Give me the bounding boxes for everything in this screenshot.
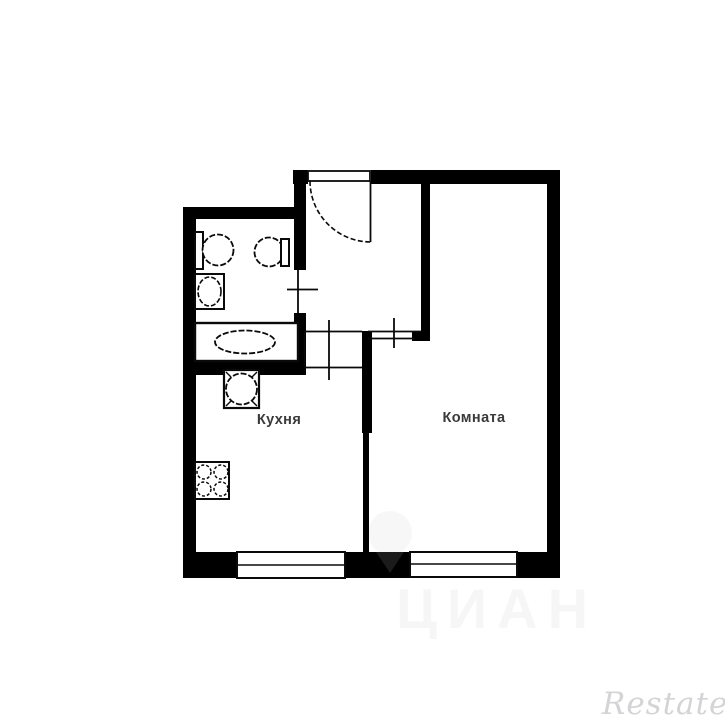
room-door-jamb [412,331,430,341]
kitchen-doorway [304,320,362,380]
right-wall [547,170,560,578]
cian-pin-watermark-head [368,511,412,555]
kitchen-room-divider-wall-lower [363,433,369,552]
toilet-left-tank-icon [195,232,203,269]
kitchen-sink-bowl-icon [226,374,257,405]
restate-watermark: Restate [602,686,725,722]
top-wall-left-stub [293,170,308,184]
stove-burner-icon [197,465,211,479]
kitchen-fixtures [195,370,259,499]
stove-burner-icon [197,482,211,496]
bathroom-top-wall [183,207,306,219]
kitchen-label: Кухня [229,412,329,428]
toilet-left-bowl-icon [203,235,234,266]
bathroom-right-wall-upper [294,184,306,270]
bathroom-fixtures [195,232,298,361]
entrance-door [308,171,371,242]
room-label: Комната [413,410,535,426]
kitchen-room-divider-wall-upper [362,331,372,433]
bottom-wall-left [183,552,237,578]
hallway-right-wall [421,184,430,341]
bottom-wall-right [517,552,560,578]
entrance-threshold [308,171,370,181]
entrance-door-swing-arc [310,181,371,242]
bathtub-basin-icon [215,331,275,354]
stove-burner-icon [214,482,228,496]
floorplan-image: Кухня Комната ЦИАН Restate [0,0,725,725]
toilet-right-bowl-icon [255,238,284,267]
bathroom-door [287,270,318,313]
cian-watermark: ЦИАН [332,576,662,641]
top-wall [371,170,560,184]
toilet-right-tank-icon [281,239,289,266]
stove-burner-icon [214,465,228,479]
washbasin-bowl-icon [198,277,221,306]
